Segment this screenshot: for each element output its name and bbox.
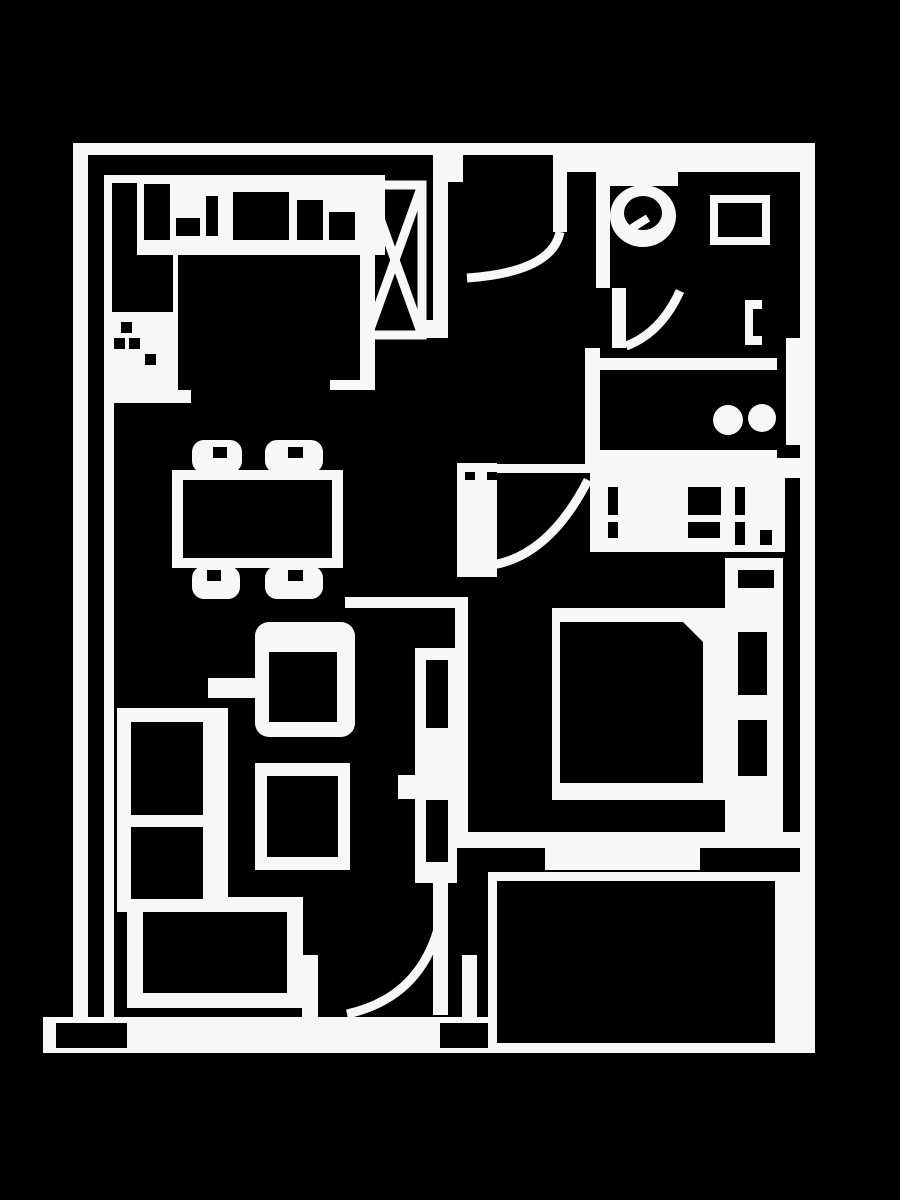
- washer-drum-2: [748, 404, 776, 432]
- wall-left-outer: [73, 143, 88, 1017]
- threshold-notch-1: [465, 472, 475, 480]
- counter-block-right-a: [297, 200, 323, 240]
- wall-bathroom-bottom: [585, 358, 777, 370]
- wardrobe-mark-4: [688, 522, 720, 538]
- shelf-slot-2: [426, 800, 448, 862]
- wall-entry-stub: [448, 143, 463, 182]
- wall-dining-return: [345, 597, 468, 608]
- wardrobe-mark-1: [608, 487, 618, 515]
- wall-bedroom-top: [590, 458, 800, 478]
- toilet-tank: [609, 160, 678, 186]
- tv-bench-top: [143, 912, 287, 993]
- armchair-seat: [269, 652, 337, 722]
- sofa-cushion-2: [131, 827, 203, 899]
- wall-stub-right-jamb: [462, 955, 477, 1017]
- terrace-notch-right: [440, 1023, 488, 1048]
- counter-block-small: [206, 196, 218, 236]
- sink-basin: [718, 203, 762, 237]
- towel-bracket-bar: [745, 300, 753, 345]
- wardrobe-mark-5: [735, 487, 745, 515]
- wall-hall-divider: [433, 152, 448, 338]
- wardrobe-mark-7: [760, 530, 772, 545]
- terrace-notch-left: [56, 1023, 127, 1048]
- towel-bracket-top: [753, 300, 762, 309]
- washer-drum: [713, 405, 743, 435]
- wall-balcony-band: [455, 832, 807, 848]
- cooktop-burner-1: [121, 322, 132, 333]
- side-table: [208, 678, 258, 698]
- bathroom-door-leaf: [612, 288, 626, 348]
- chair-notch-2: [288, 447, 303, 458]
- sofa-cushion-1: [131, 722, 203, 815]
- laundry-door-leaf: [786, 338, 800, 445]
- balcony-sliding-panel: [545, 848, 700, 870]
- wardrobe: [590, 477, 785, 552]
- bed-mattress: [560, 622, 703, 783]
- shelf-arm: [398, 775, 418, 799]
- wardrobe-mark-3: [688, 487, 721, 515]
- counter-block-right-b: [329, 212, 355, 240]
- counter-block-step: [176, 218, 200, 236]
- wardrobe-mark-2: [608, 522, 618, 538]
- floor-plan: [0, 0, 900, 1200]
- chair-notch-1: [213, 447, 227, 458]
- coffee-table-top: [267, 776, 338, 857]
- dining-table-top: [183, 480, 332, 558]
- wall-bathroom-left: [596, 155, 610, 288]
- bed-headboard: [725, 558, 783, 833]
- headboard-mark: [738, 570, 774, 588]
- towel-bracket-bottom: [753, 336, 762, 345]
- cooktop-burner-3: [129, 338, 140, 349]
- floor-plan-canvas: [0, 0, 900, 1200]
- counter-cabinet-left: [112, 255, 173, 312]
- counter-block-2: [144, 184, 170, 240]
- counter-block-sink: [233, 192, 289, 240]
- pillow-2: [738, 720, 767, 776]
- wall-bedroom-left-upper: [457, 463, 497, 577]
- threshold-notch-2: [487, 472, 497, 480]
- cooktop-burner-2: [114, 338, 125, 349]
- balcony-floor: [497, 881, 775, 1043]
- shelf-slot-1: [426, 660, 448, 728]
- chair-notch-4: [288, 570, 303, 581]
- chair-notch-3: [207, 570, 221, 581]
- wardrobe-mark-6: [735, 522, 745, 545]
- wall-stub-left-jamb: [302, 955, 318, 1017]
- pillow-1: [738, 632, 767, 695]
- cooktop-burner-4: [145, 354, 156, 365]
- entrance-door-leaf: [553, 150, 567, 232]
